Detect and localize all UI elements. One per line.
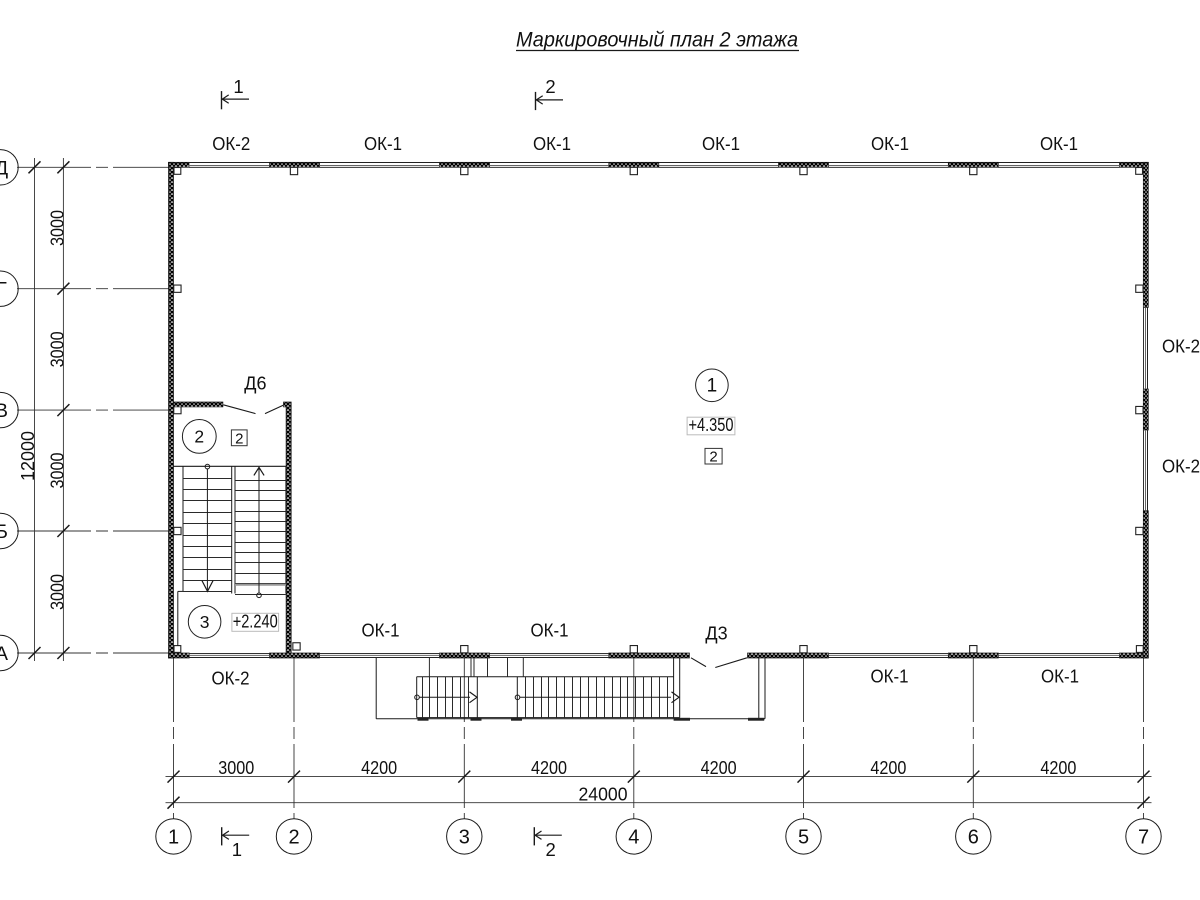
svg-text:ОК-1: ОК-1 (1041, 667, 1079, 687)
svg-text:4200: 4200 (531, 758, 567, 778)
svg-text:24000: 24000 (579, 784, 628, 804)
svg-text:ОК-2: ОК-2 (212, 134, 250, 154)
svg-text:Г: Г (0, 279, 7, 301)
svg-text:ОК-1: ОК-1 (871, 667, 909, 687)
svg-text:ОК-2: ОК-2 (1162, 457, 1200, 477)
svg-text:5: 5 (798, 826, 809, 848)
svg-text:ОК-2: ОК-2 (212, 668, 250, 688)
svg-text:3: 3 (459, 826, 470, 848)
svg-text:1: 1 (233, 76, 243, 97)
svg-text:3000: 3000 (48, 574, 68, 610)
svg-text:3000: 3000 (48, 331, 68, 367)
svg-text:+4.350: +4.350 (689, 415, 734, 435)
svg-text:ОК-1: ОК-1 (362, 620, 400, 640)
svg-text:ОК-1: ОК-1 (533, 134, 571, 154)
svg-text:2: 2 (194, 427, 204, 447)
svg-text:Маркировочный план 2 этажа: Маркировочный план 2 этажа (516, 28, 798, 52)
svg-text:2: 2 (709, 449, 717, 466)
svg-text:6: 6 (968, 826, 979, 848)
svg-text:ОК-1: ОК-1 (531, 620, 569, 640)
svg-text:+2.240: +2.240 (233, 612, 278, 632)
svg-text:3000: 3000 (48, 210, 68, 246)
svg-text:2: 2 (288, 826, 299, 848)
svg-text:12000: 12000 (18, 431, 38, 481)
svg-text:3000: 3000 (48, 453, 68, 489)
svg-text:Д3: Д3 (705, 624, 727, 644)
svg-text:4: 4 (628, 826, 639, 848)
svg-text:4200: 4200 (870, 758, 906, 778)
svg-text:2: 2 (235, 430, 243, 447)
svg-text:ОК-2: ОК-2 (1162, 337, 1200, 357)
svg-text:А: А (0, 643, 8, 665)
svg-text:ОК-1: ОК-1 (1040, 134, 1078, 154)
svg-text:2: 2 (545, 839, 555, 860)
svg-text:ОК-1: ОК-1 (702, 134, 740, 154)
svg-text:Д6: Д6 (244, 374, 266, 394)
svg-text:ОК-1: ОК-1 (871, 134, 909, 154)
svg-text:1: 1 (168, 826, 179, 848)
svg-text:4200: 4200 (701, 758, 737, 778)
svg-text:1: 1 (232, 839, 242, 860)
svg-text:В: В (0, 400, 8, 422)
svg-text:Д: Д (0, 157, 8, 179)
svg-text:2: 2 (545, 76, 555, 97)
svg-text:4200: 4200 (361, 758, 397, 778)
svg-text:ОК-1: ОК-1 (364, 134, 402, 154)
svg-text:Б: Б (0, 521, 8, 543)
svg-text:7: 7 (1138, 826, 1149, 848)
svg-text:1: 1 (707, 376, 718, 397)
svg-text:3: 3 (200, 612, 210, 632)
svg-text:3000: 3000 (218, 758, 254, 778)
svg-text:4200: 4200 (1040, 758, 1076, 778)
